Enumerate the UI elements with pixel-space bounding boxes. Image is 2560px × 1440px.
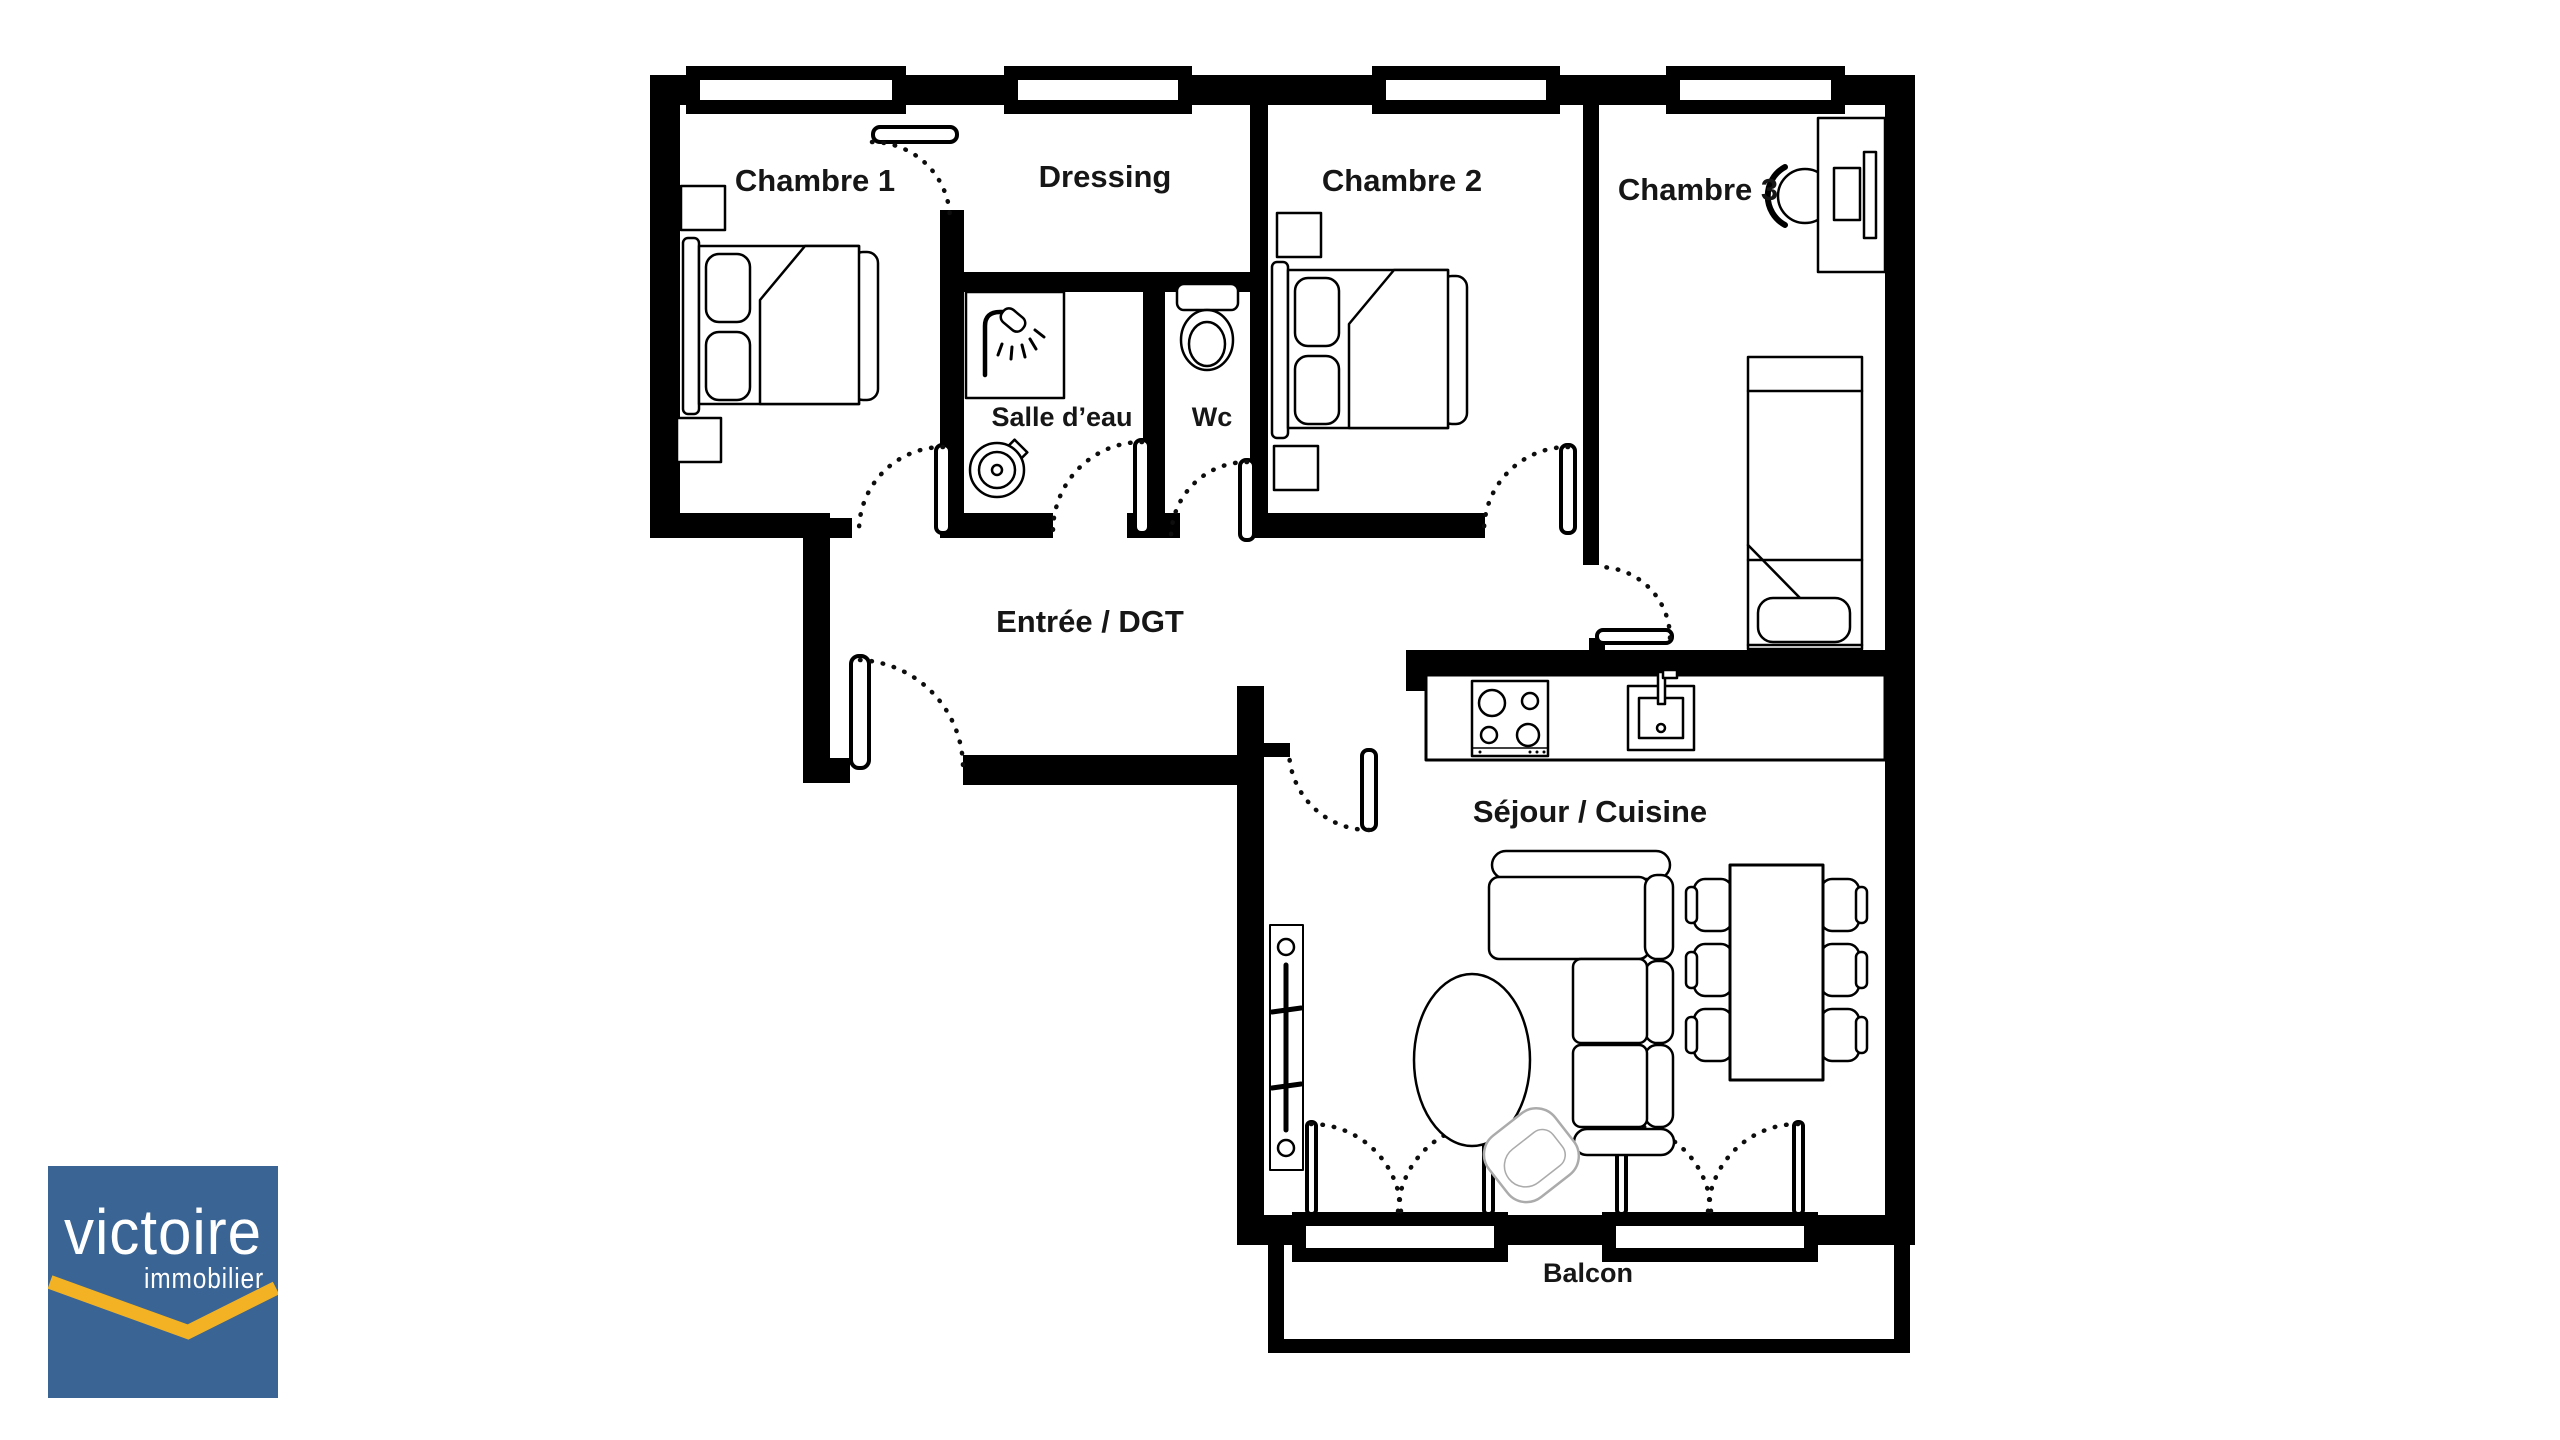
nightstand xyxy=(1274,446,1318,490)
dining-set xyxy=(1686,865,1867,1080)
door-sejour xyxy=(1289,750,1376,830)
chair xyxy=(1686,879,1732,931)
wall-segment xyxy=(1583,105,1599,565)
balcony-wall xyxy=(1894,1245,1910,1353)
chair xyxy=(1686,944,1732,996)
door-chambre2 xyxy=(1484,445,1575,533)
room-label-balcon: Balcon xyxy=(1543,1258,1633,1288)
door-salle-deau xyxy=(1053,440,1149,533)
shower-icon xyxy=(966,292,1064,398)
chair xyxy=(1821,944,1867,996)
room-label-chambre1: Chambre 1 xyxy=(735,163,895,198)
monitor-icon xyxy=(1864,152,1876,238)
room-label-salle-deau: Salle d’eau xyxy=(991,402,1132,432)
desk xyxy=(1818,118,1885,272)
toilet-icon xyxy=(1177,284,1238,370)
door-chambre1 xyxy=(859,445,950,533)
dining-table xyxy=(1730,865,1823,1080)
room-label-sejour: Séjour / Cuisine xyxy=(1473,794,1707,829)
double-bed xyxy=(1272,262,1467,438)
agency-logo: victoire immobilier xyxy=(48,1166,278,1398)
french-door-sill xyxy=(1292,1212,1508,1262)
bedroom2-furniture xyxy=(1272,213,1467,490)
chair xyxy=(1821,879,1867,931)
floor-plan: Chambre 1 Dressing Chambre 2 Chambre 3 S… xyxy=(0,0,2560,1440)
single-bed xyxy=(1748,357,1862,649)
logo-brand-text: victoire xyxy=(64,1196,262,1268)
wall-segment xyxy=(1264,743,1290,757)
kitchen xyxy=(1426,670,1885,760)
window xyxy=(1004,66,1192,114)
room-label-chambre2: Chambre 2 xyxy=(1322,163,1482,198)
room-label-entree: Entrée / DGT xyxy=(996,604,1184,639)
balcony-wall xyxy=(1268,1245,1284,1353)
radiator-icon xyxy=(1270,925,1303,1170)
room-label-chambre3: Chambre 3 xyxy=(1618,172,1778,207)
floor-plan-page: Chambre 1 Dressing Chambre 2 Chambre 3 S… xyxy=(0,0,2560,1440)
double-bed xyxy=(683,238,878,414)
entrance-door xyxy=(851,656,963,768)
room-label-wc: Wc xyxy=(1192,402,1233,432)
wall-segment xyxy=(940,513,1053,538)
bathroom-fixtures xyxy=(966,292,1064,497)
wall-segment xyxy=(1583,513,1599,565)
balcony-wall xyxy=(1268,1339,1910,1353)
french-door-sill xyxy=(1602,1212,1818,1262)
window xyxy=(1372,66,1560,114)
bedroom1-furniture xyxy=(677,186,878,462)
nightstand xyxy=(677,418,721,462)
nightstand xyxy=(1277,213,1321,257)
door-chambre3 xyxy=(1597,567,1672,643)
wall-segment xyxy=(963,755,1264,785)
window xyxy=(686,66,906,114)
wall-segment xyxy=(1490,1215,1620,1245)
door-wc xyxy=(1171,460,1254,540)
room-label-dressing: Dressing xyxy=(1039,159,1172,194)
wall-segment xyxy=(1237,686,1264,1245)
wall-segment xyxy=(1268,513,1485,538)
wall-segment xyxy=(650,75,680,538)
washing-machine-icon xyxy=(970,440,1027,497)
nightstand xyxy=(681,186,725,230)
stove-icon xyxy=(1472,681,1548,756)
wall-segment xyxy=(650,513,828,538)
chair xyxy=(1686,1009,1732,1061)
monitor-icon xyxy=(1834,168,1860,220)
wall-segment xyxy=(830,758,850,783)
window xyxy=(1666,66,1845,114)
wall-segment xyxy=(828,518,852,538)
living-room-furniture xyxy=(1270,851,1867,1212)
wall-segment xyxy=(803,513,830,783)
wall-segment xyxy=(1414,650,1885,675)
wall-segment xyxy=(1885,75,1915,1245)
agency-logo-graphic: victoire immobilier xyxy=(48,1166,278,1398)
chair xyxy=(1821,1009,1867,1061)
logo-tagline-text: immobilier xyxy=(144,1263,264,1295)
